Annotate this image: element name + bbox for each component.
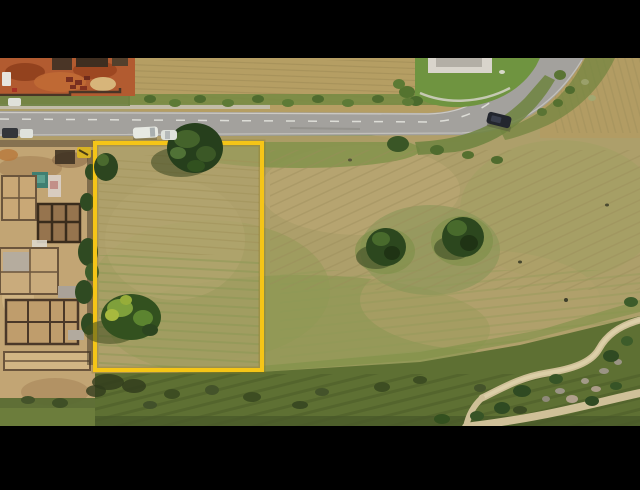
- rock: [599, 368, 609, 374]
- aerial-photograph: [0, 0, 640, 490]
- tree-foliage: [170, 147, 186, 159]
- field-speck: [348, 159, 352, 162]
- path-bush: [621, 336, 633, 346]
- scrub-bush: [52, 398, 68, 408]
- path-bush: [513, 385, 531, 397]
- lawn-ornament: [499, 70, 505, 74]
- concrete-slab: [3, 252, 29, 272]
- brick-stack: [70, 85, 76, 89]
- tree-foliage: [142, 324, 158, 336]
- path-bush: [549, 374, 563, 384]
- rock: [542, 396, 550, 402]
- scrub-bush: [413, 376, 427, 384]
- verge-bush: [565, 86, 575, 94]
- path-bush: [585, 396, 599, 406]
- tree-shadow: [122, 379, 146, 393]
- verge-bush: [402, 98, 414, 106]
- verge-bush: [194, 95, 206, 103]
- bush-highlight: [97, 154, 109, 166]
- path-bush: [610, 382, 622, 390]
- equipment-red: [12, 88, 17, 92]
- tree-foliage: [105, 309, 119, 321]
- field-speck: [518, 261, 522, 264]
- path-bush: [603, 350, 619, 362]
- tree-foliage: [133, 310, 153, 326]
- scrub-bush: [164, 389, 180, 399]
- tree-foliage: [174, 130, 200, 148]
- scrub-bush: [143, 401, 157, 409]
- tree-foliage: [187, 160, 205, 172]
- verge-bush: [554, 70, 566, 80]
- boundary-tree: [75, 280, 93, 304]
- verge-bush: [553, 99, 563, 107]
- rock: [581, 378, 589, 384]
- roadside-tree: [387, 136, 409, 152]
- brick-stack: [80, 86, 87, 90]
- car-white: [8, 98, 21, 106]
- tree-foliage: [447, 220, 467, 236]
- truck-white: [2, 72, 11, 86]
- rock: [588, 95, 596, 101]
- verge-bush: [491, 156, 503, 164]
- path-bush: [494, 402, 510, 414]
- tree-shadow: [86, 385, 106, 397]
- letterbox-bottom: [0, 426, 640, 490]
- path-bush: [470, 411, 484, 421]
- path-bush: [624, 297, 638, 307]
- verge-bush: [169, 99, 181, 107]
- car-window: [165, 131, 170, 139]
- field-speck: [564, 298, 568, 302]
- construction-opening: [55, 150, 75, 164]
- tree-foliage: [120, 295, 132, 305]
- path-bush: [434, 414, 450, 424]
- tree-foliage: [372, 232, 390, 246]
- verge-bush: [342, 99, 354, 107]
- rock: [591, 386, 601, 392]
- field-speck: [605, 204, 609, 207]
- verge-bush: [462, 151, 474, 159]
- rock: [581, 79, 589, 85]
- materials-white: [32, 240, 47, 247]
- verge-bush: [537, 108, 547, 116]
- scrub-bush: [315, 388, 329, 396]
- scrub-bush: [292, 401, 308, 409]
- building-roof: [52, 58, 72, 70]
- verge-bush: [312, 95, 324, 103]
- rock: [555, 388, 565, 394]
- scrub-bush: [205, 385, 219, 395]
- concrete-slab: [68, 330, 84, 340]
- building-roof: [112, 58, 128, 66]
- car-white: [20, 129, 33, 138]
- brick-stack: [75, 80, 82, 85]
- car-dark: [2, 128, 18, 138]
- palm-bush: [393, 79, 405, 89]
- aerial-photo-svg: [0, 0, 640, 490]
- road-tire-marks: [290, 128, 360, 129]
- structure-pink: [50, 181, 58, 189]
- verge-bush: [430, 145, 444, 155]
- scrub-bush: [243, 392, 261, 402]
- tree-foliage: [460, 235, 478, 251]
- grass-strip: [0, 408, 95, 427]
- verge-bush: [282, 99, 294, 107]
- brick-stack: [84, 76, 90, 80]
- building-roof: [76, 58, 108, 67]
- construction-frontage: [0, 140, 95, 147]
- rock: [566, 395, 578, 403]
- scrub-bush: [374, 382, 390, 392]
- verge-bush: [372, 95, 384, 103]
- brick-stack: [66, 77, 73, 82]
- tree-foliage: [384, 246, 400, 260]
- tree-foliage: [196, 146, 216, 162]
- scrub-bush: [21, 396, 35, 404]
- verge-bush: [144, 95, 156, 103]
- letterbox-top: [0, 0, 640, 58]
- verge-bush: [222, 99, 234, 107]
- path-bush: [513, 406, 527, 414]
- verge-bush: [252, 95, 264, 103]
- sand-pile: [90, 77, 116, 91]
- path-bush: [474, 384, 486, 392]
- van-windshield: [150, 127, 155, 136]
- estate-building-roof: [436, 58, 482, 67]
